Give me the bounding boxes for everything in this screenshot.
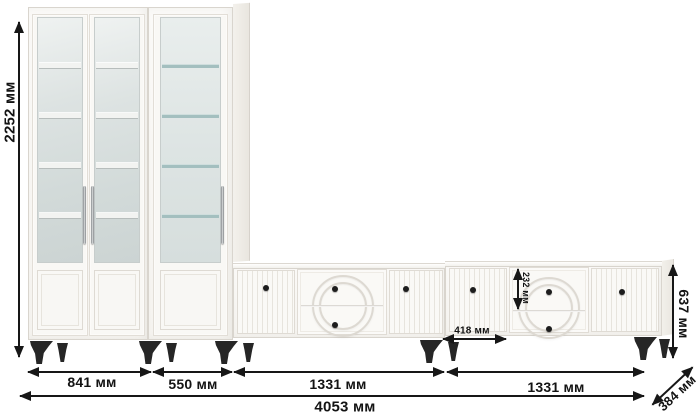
tv-stand-left-width-label: 1331 мм <box>309 376 366 392</box>
shelf <box>39 113 81 119</box>
tv-stand-right-width-label: 1331 мм <box>527 379 584 395</box>
glass-window <box>160 17 221 263</box>
drawer-height-arrow <box>517 269 519 309</box>
drawer-knob <box>332 286 338 292</box>
fluted-door <box>389 270 443 334</box>
door-knob <box>619 289 625 295</box>
door-handle <box>91 186 94 244</box>
double-cabinet-width-label: 841 мм <box>67 374 116 390</box>
leg <box>139 341 162 364</box>
drawer-knob <box>546 326 552 332</box>
fluted-door <box>237 270 295 334</box>
glass-shelf <box>162 164 219 168</box>
door-knob <box>470 287 476 293</box>
shelf <box>39 63 81 69</box>
fluted-door <box>591 268 659 332</box>
tv-stand-height-label: 637 мм <box>676 289 692 338</box>
leg <box>420 340 443 363</box>
shelf <box>39 163 81 169</box>
shelf <box>96 163 138 169</box>
glass-shelf <box>162 214 219 218</box>
drawer-height-label: 232 мм <box>521 272 531 304</box>
door-knob <box>263 285 269 291</box>
drawer-divider <box>513 310 585 312</box>
door-handle <box>83 186 86 244</box>
total-height-arrow <box>18 22 20 357</box>
leg <box>166 343 177 362</box>
cabinet-side-panel <box>233 3 250 262</box>
leg <box>215 341 238 364</box>
single-cabinet-width-label: 550 мм <box>168 376 217 392</box>
shelf <box>96 63 138 69</box>
total-height-label: 2252 мм <box>2 81 19 142</box>
glass-window <box>37 17 83 263</box>
double-cabinet-width-arrow <box>28 371 151 373</box>
glass-shelf <box>162 114 219 118</box>
door-bottom-panel <box>37 270 83 330</box>
drawer-knob <box>546 289 552 295</box>
furniture-dimension-diagram: 2252 мм 841 мм 550 мм 1331 мм 1331 мм 40… <box>0 0 700 420</box>
leg <box>243 343 254 362</box>
leg <box>448 342 459 361</box>
shelf <box>39 213 81 219</box>
single-cabinet-width-arrow <box>153 371 232 373</box>
door-bottom-panel <box>160 270 221 330</box>
tv-door-width-label: 418 мм <box>454 326 489 337</box>
glass-shelf <box>162 64 219 68</box>
glass-window <box>94 17 140 263</box>
drawer-knob <box>332 322 338 328</box>
leg <box>57 343 68 362</box>
tv-stand-height-arrow <box>672 265 674 358</box>
door-bottom-panel <box>94 270 140 330</box>
drawer-divider <box>301 305 383 307</box>
leg <box>634 337 657 360</box>
tv-stand-left-width-arrow <box>234 371 444 373</box>
tv-door-width-arrow <box>443 338 506 340</box>
drawer-section <box>297 269 387 335</box>
leg <box>30 341 53 364</box>
fluted-door <box>449 268 507 332</box>
door-handle <box>221 186 224 244</box>
tv-stand-right-width-arrow <box>447 371 644 373</box>
shelf <box>96 213 138 219</box>
total-width-arrow <box>20 395 644 397</box>
door-knob <box>403 286 409 292</box>
shelf <box>96 113 138 119</box>
total-width-label: 4053 мм <box>314 399 375 416</box>
